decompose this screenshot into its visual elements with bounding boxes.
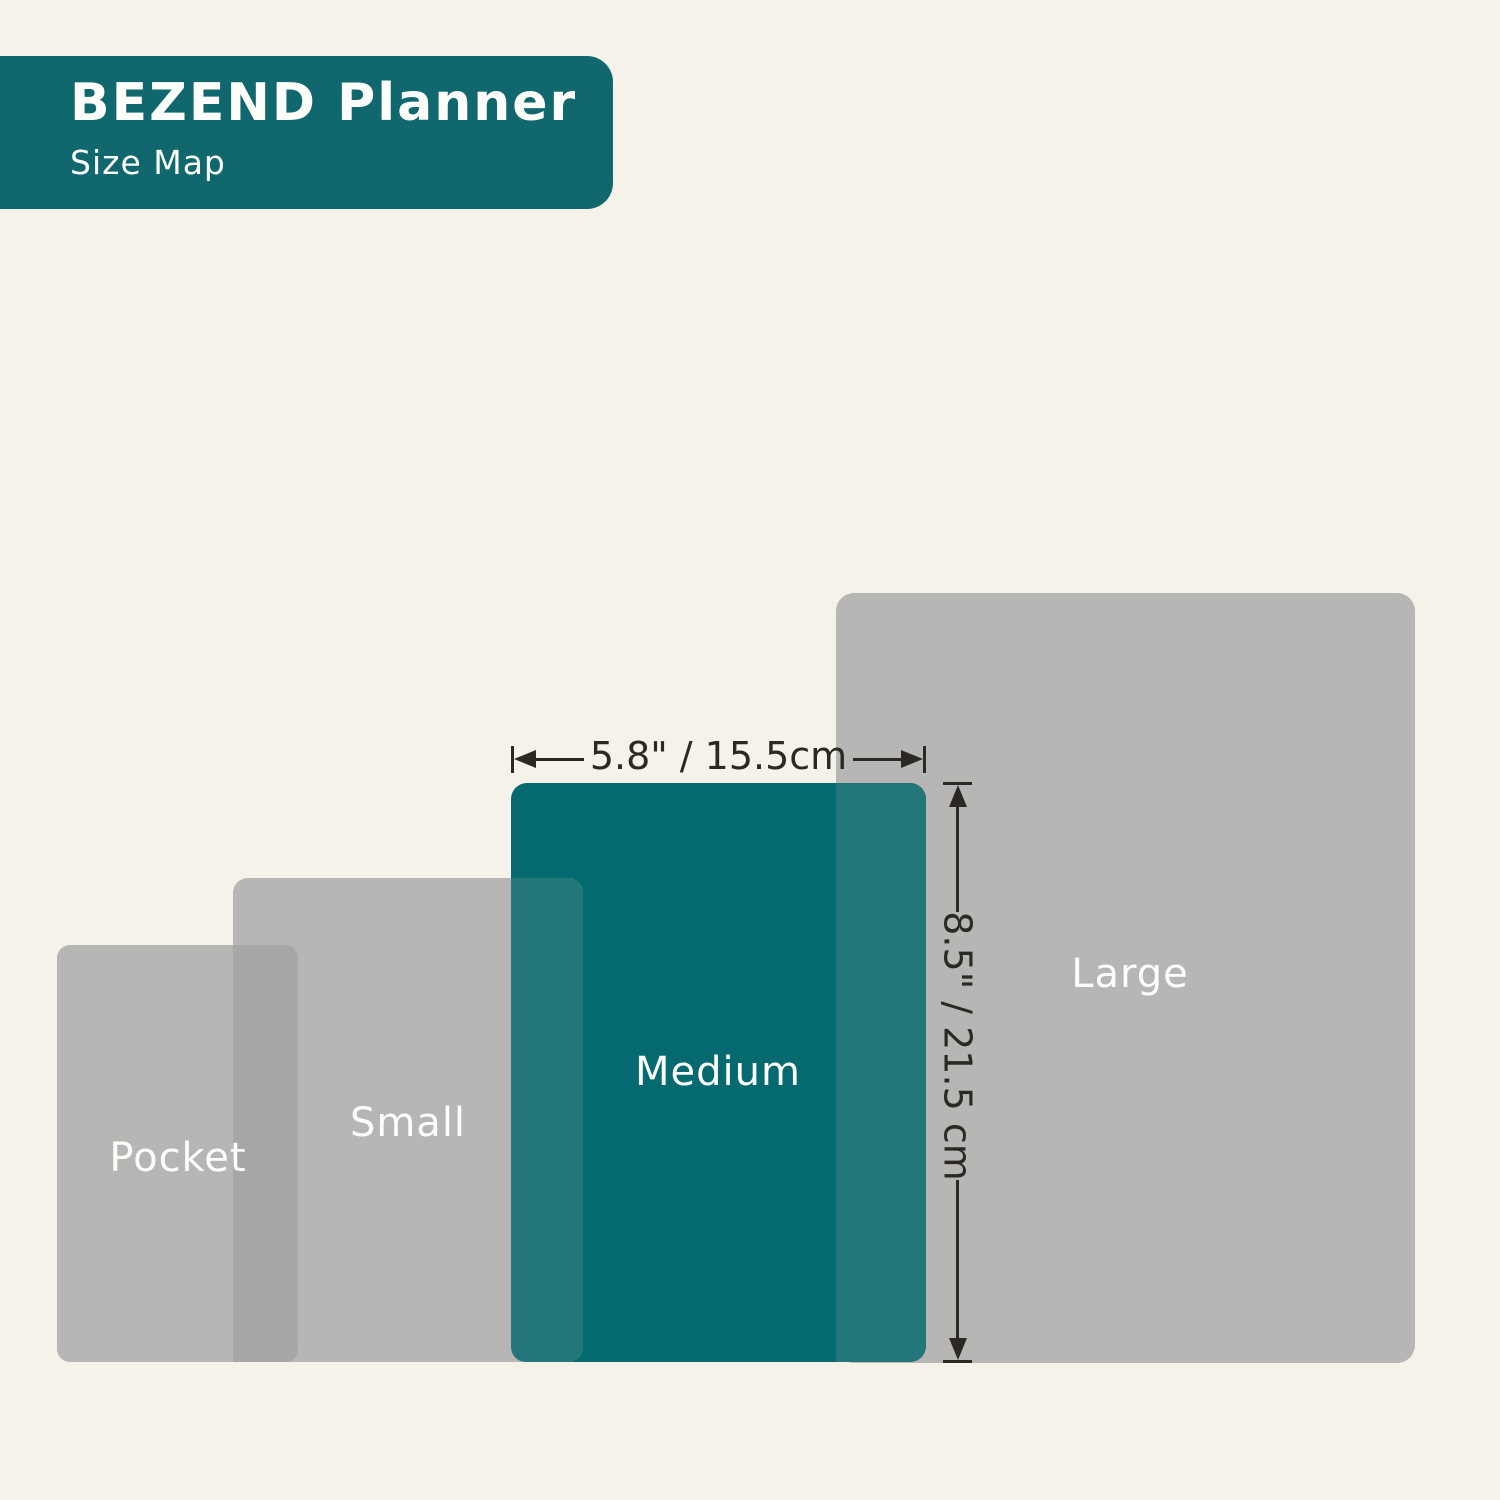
large-label: Large <box>1071 951 1189 997</box>
width-dimension: 5.8" / 15.5cm <box>511 737 926 781</box>
dim-tick-bottom <box>943 1360 972 1363</box>
medium-label: Medium <box>635 1049 801 1095</box>
arrow-left-icon <box>514 750 536 768</box>
dim-line-bottom <box>956 1180 959 1338</box>
height-dimension-label: 8.5" / 21.5 cm <box>936 911 980 1180</box>
size-map-canvas: BEZEND Planner Size Map Pocket Small Med… <box>0 0 1500 1500</box>
size-map-subtitle: Size Map <box>70 143 613 182</box>
pocket-label: Pocket <box>109 1135 246 1181</box>
small-label: Small <box>350 1100 466 1146</box>
arrow-right-icon <box>901 750 923 768</box>
dim-line-right <box>853 758 901 761</box>
height-dimension-labelwrap: 8.5" / 21.5 cm <box>943 912 972 1180</box>
arrow-down-icon <box>949 1338 967 1360</box>
height-dimension: 8.5" / 21.5 cm <box>943 782 972 1363</box>
dim-tick-right <box>923 746 926 773</box>
arrow-up-icon <box>949 785 967 807</box>
medium-large-overlap <box>836 783 926 1362</box>
header-badge: BEZEND Planner Size Map <box>0 56 613 209</box>
dim-line-left <box>536 758 584 761</box>
small-medium-overlap <box>511 878 583 1362</box>
width-dimension-label: 5.8" / 15.5cm <box>584 734 853 778</box>
brand-title: BEZEND Planner <box>70 74 613 134</box>
dim-line-top <box>956 807 959 912</box>
